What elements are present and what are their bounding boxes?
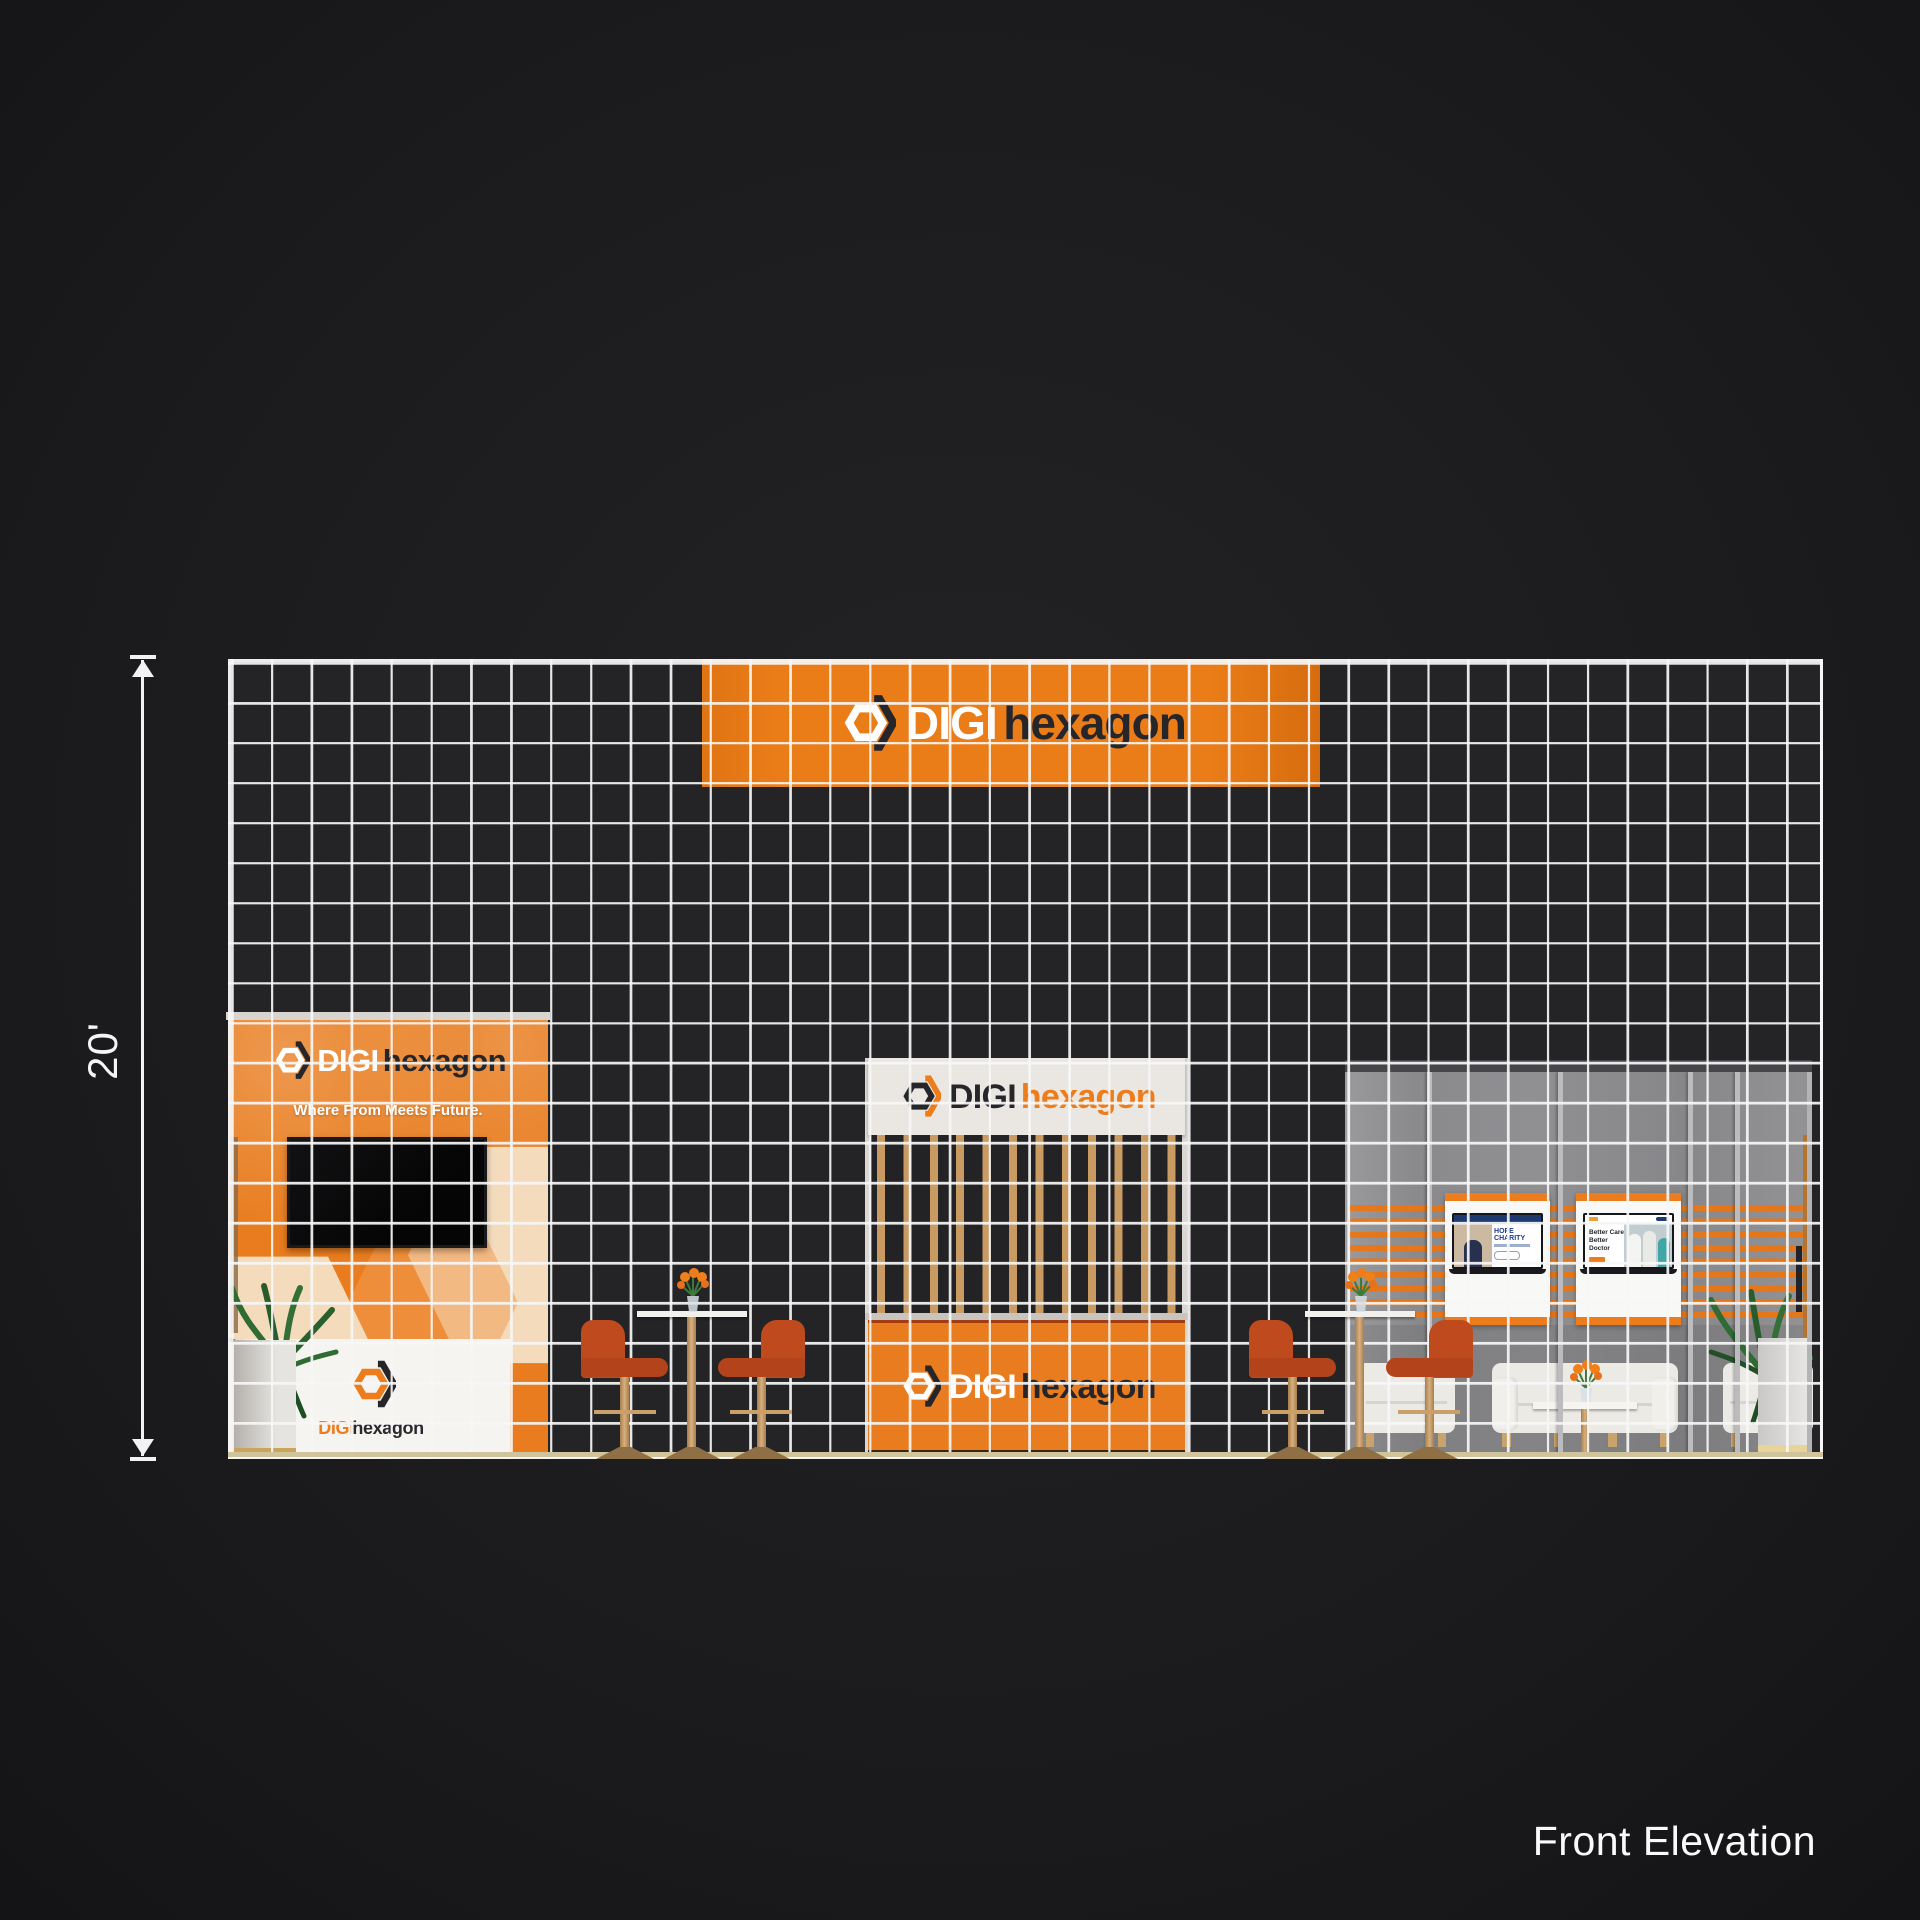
brand-hexagon: hexagon (383, 1045, 506, 1076)
hexagon-icon (346, 1359, 396, 1409)
brand-tagline: Where From Meets Future. (228, 1102, 548, 1119)
poster-top-bar (1445, 1193, 1550, 1201)
hexagon-icon (897, 1074, 941, 1118)
sofa-armrest (1652, 1377, 1678, 1431)
bar-table-leg (687, 1317, 696, 1448)
stool-footring (1398, 1410, 1460, 1414)
center-counter: DIGIhexagon (868, 1320, 1185, 1454)
poster-bottom-bar (1576, 1317, 1681, 1325)
flower-vase-icon (672, 1264, 714, 1314)
dimension-cap-top (130, 655, 156, 659)
site-copy: Better Care Better Doctor (1589, 1229, 1626, 1263)
site-headline-line2: Better Doctor (1589, 1237, 1626, 1253)
site-navbar (1454, 1215, 1541, 1224)
site-button (1589, 1257, 1605, 1263)
wood-slat-wall (871, 1135, 1182, 1313)
bar-table-leg (1355, 1317, 1364, 1448)
glass-mullion (1558, 1072, 1563, 1456)
planter-pot (234, 1340, 296, 1450)
dimension-cap-bottom (130, 1457, 156, 1461)
flower-vase-icon (1565, 1356, 1607, 1406)
stool-footring (730, 1410, 792, 1414)
digihexagon-logo: DIGIhexagon (836, 693, 1186, 753)
tower-top-cap (226, 1012, 550, 1020)
brand-digi: DIGI (906, 700, 997, 746)
stool-seat (1249, 1358, 1336, 1377)
site-nav-button (1656, 1217, 1669, 1221)
glass-frame-right (1807, 1072, 1812, 1456)
bar-table-base (1332, 1447, 1388, 1459)
dimension-line (141, 660, 144, 1456)
glass-top-frame (1345, 1060, 1812, 1072)
height-dimension: 20' (130, 655, 156, 1461)
brand-digi: DIGI (949, 1080, 1016, 1114)
hexagon-icon (836, 693, 896, 753)
site-copy: HOPE CHARITY (1494, 1228, 1539, 1260)
hexagon-icon (897, 1364, 941, 1408)
glass-door-frame (1735, 1072, 1740, 1456)
sofa-leg (1502, 1433, 1511, 1447)
poster-right: Better Care Better Doctor (1576, 1193, 1681, 1325)
stool-base (732, 1447, 790, 1459)
wall-mounted-screen (287, 1137, 487, 1248)
floor-plant (228, 1268, 342, 1459)
coffee-table-top (1533, 1402, 1637, 1409)
doctor-figure (1643, 1231, 1656, 1267)
site-hero-photo (1454, 1224, 1492, 1267)
brand-hexagon: hexagon (1021, 1080, 1156, 1114)
website-screenshot: Better Care Better Doctor (1583, 1213, 1674, 1269)
coffee-table (1533, 1402, 1637, 1457)
stool-base (1264, 1447, 1322, 1459)
brand-hexagon: hexagon (1003, 700, 1186, 746)
digihexagon-logo: DIGIhexagon (228, 1040, 548, 1080)
bar-table-set-left (581, 1264, 804, 1459)
site-button (1494, 1251, 1520, 1260)
stool-base (1400, 1447, 1458, 1459)
floor-line (228, 1452, 1823, 1457)
bar-stool (581, 1320, 669, 1459)
left-tower: DIGIhexagon Where From Meets Future. DIG… (228, 1012, 548, 1459)
bar-table-set-right (1249, 1264, 1472, 1459)
stool-seat (1386, 1358, 1473, 1377)
site-subline (1494, 1244, 1530, 1247)
coffee-table-leg (1581, 1409, 1589, 1452)
front-elevation-drawing: 20' DIGIhexagon (0, 0, 1920, 1920)
sofa-leg (1660, 1433, 1669, 1447)
planter-box (1758, 1338, 1812, 1452)
nurse-figure (1658, 1238, 1670, 1267)
stool-seat (718, 1358, 805, 1377)
bar-table-base (664, 1447, 720, 1459)
bar-stool (717, 1320, 805, 1459)
site-hero-photo (1624, 1224, 1672, 1267)
stool-seat (581, 1358, 668, 1377)
brand-digi: DIGI (949, 1370, 1016, 1404)
brand-hexagon: hexagon (1021, 1370, 1156, 1404)
bar-stool (1249, 1320, 1337, 1459)
poster-top-bar (1576, 1193, 1681, 1201)
drawing-title: Front Elevation (1533, 1818, 1816, 1865)
header-banner: DIGIhexagon (702, 659, 1320, 787)
counter-top-strip (865, 1313, 1188, 1320)
flower-vase-icon (1340, 1264, 1382, 1314)
center-slat-unit: DIGIhexagon DIGIhexagon (865, 1058, 1188, 1457)
glass-mullion (1688, 1072, 1693, 1456)
bar-stool (1385, 1320, 1473, 1459)
digihexagon-logo: DIGIhexagon (897, 1364, 1156, 1408)
site-headline-line1: Better Care (1589, 1229, 1626, 1237)
stool-footring (1262, 1410, 1324, 1414)
laptop-base (1580, 1269, 1677, 1274)
brand-digi: DIGI (317, 1045, 378, 1076)
hexagon-icon (270, 1040, 310, 1080)
side-screen-edge (1796, 1246, 1802, 1312)
stool-base (596, 1447, 654, 1459)
site-navbar (1585, 1215, 1672, 1224)
arrow-down-icon (132, 1439, 154, 1456)
site-logo (1588, 1217, 1598, 1221)
center-header-band: DIGIhexagon (868, 1058, 1185, 1135)
booth-back-wall: DIGIhexagon DIGIhexagon Where From (228, 659, 1823, 1459)
website-screenshot: HOPE CHARITY (1452, 1213, 1543, 1269)
site-headline: HOPE CHARITY (1494, 1228, 1539, 1242)
digihexagon-logo: DIGIhexagon (897, 1074, 1156, 1118)
sofa-armrest (1492, 1377, 1518, 1431)
dimension-label: 20' (79, 1022, 127, 1080)
doctor-figure (1628, 1234, 1641, 1267)
stool-footring (594, 1410, 656, 1414)
brand-hexagon: hexagon (352, 1418, 424, 1438)
tower-graphic-panel: DIGIhexagon Where From Meets Future. DIG… (228, 1020, 548, 1459)
